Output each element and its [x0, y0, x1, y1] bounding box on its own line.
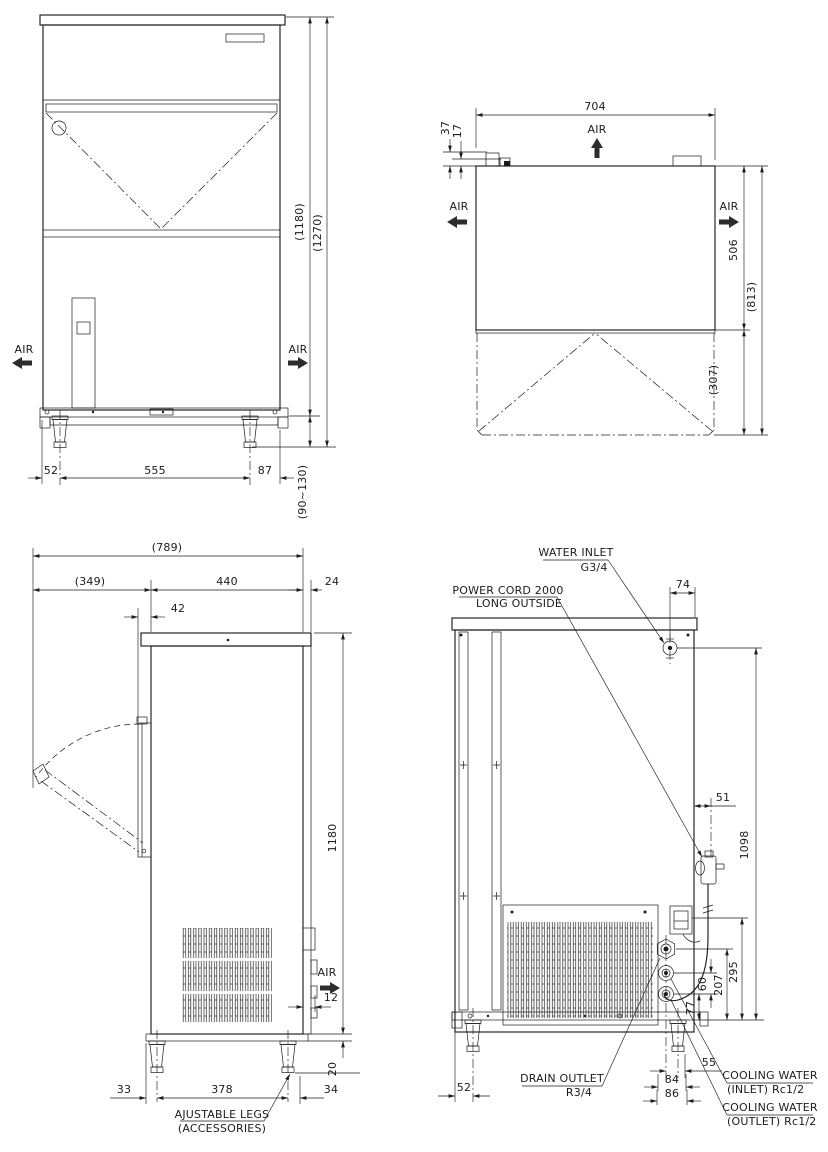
rear-power-plug: [701, 856, 716, 884]
side-door-swing-arc: [36, 724, 140, 777]
air-right-arrow-icon: [719, 216, 739, 228]
power-cord-label-line1: POWER CORD 2000: [452, 584, 563, 597]
top-air-flow: AIR AIR AIR: [447, 123, 739, 228]
air-right-arrow-icon: [288, 357, 308, 369]
side-air-flow: AIR: [317, 966, 340, 994]
front-dim-leg-range: (90~130): [296, 465, 309, 519]
front-door-handle: [72, 298, 95, 408]
front-cabinet-outline: [40, 15, 285, 410]
cooling-outlet-label-line2: (OUTLET) Rc1/2: [727, 1115, 817, 1128]
side-dim-door-thickness: 42: [171, 602, 185, 615]
top-door-swing-projection: [477, 333, 714, 435]
cooling-inlet-label-line2: (INLET) Rc1/2: [727, 1083, 804, 1096]
cooling-inlet-label-line1: COOLING WATER: [722, 1069, 818, 1082]
side-dim-height: 1180: [326, 824, 339, 853]
rear-dim-cord-height: 295: [727, 961, 740, 983]
front-bin-door-swing-line: [46, 113, 161, 229]
rear-callouts: WATER INLET G3/4 POWER CORD 2000 LONG OU…: [452, 546, 817, 1128]
adjustable-legs-label-line2: (ACCESSORIES): [178, 1122, 266, 1135]
top-view: AIR AIR AIR 704 37 17: [439, 100, 768, 435]
rear-cooling-inlet-fitting: [659, 966, 674, 981]
side-dim-body-depth: 440: [216, 575, 238, 588]
front-air-left-label: AIR: [14, 343, 33, 356]
drain-outlet-label-line2: R3/4: [566, 1086, 592, 1099]
front-dim-body-height: (1180): [293, 203, 306, 241]
rear-dim-cooling-gap: 60: [696, 977, 709, 991]
side-dim-depth-total: (789): [152, 541, 183, 554]
side-open-door-line: [45, 770, 143, 843]
technical-drawing-canvas: AIR AIR (1180) (1270) (90~130) 52 555 87: [0, 0, 828, 1152]
front-view: AIR AIR (1180) (1270) (90~130) 52 555 87: [12, 15, 336, 519]
side-door: [33, 717, 151, 857]
side-dim-rear-offset: 24: [325, 575, 339, 588]
top-air-right-label: AIR: [719, 200, 738, 213]
top-rear-tab: [673, 156, 701, 166]
side-dim-rear-leg: 34: [324, 1083, 338, 1096]
drawing-sheet: AIR AIR (1180) (1270) (90~130) 52 555 87: [0, 0, 828, 1152]
top-dim-depth-total: (813): [745, 282, 758, 313]
top-dim-width: 704: [584, 100, 606, 113]
rear-vent-grille: [503, 905, 658, 1025]
front-dimensions: (1180) (1270) (90~130) 52 555 87: [28, 17, 336, 519]
front-dim-total-height: (1270): [311, 214, 324, 252]
front-lock-detail: [52, 121, 66, 135]
front-dim-base-left: 52: [44, 464, 58, 477]
air-left-arrow-icon: [447, 216, 467, 228]
top-dimensions: 704 37 17 506 (813) (307): [439, 100, 768, 435]
air-up-arrow-icon: [591, 138, 603, 158]
top-cabinet-outline: [476, 153, 715, 333]
side-view: AIR (789) (349) 440 24 42 1180: [33, 541, 360, 1135]
air-left-arrow-icon: [12, 357, 32, 369]
rear-mounting-rails: [459, 632, 501, 1010]
front-bin-door-swing-line: [161, 113, 277, 229]
front-dim-leg-span: 555: [144, 464, 166, 477]
side-dim-base: 20: [326, 1062, 339, 1076]
water-inlet-label-line1: WATER INLET: [538, 546, 613, 559]
rear-view: 74 51 1098 295 207 60 77 52: [438, 546, 818, 1128]
rear-connector-box: [670, 906, 692, 934]
rear-dimensions: 74 51 1098 295 207 60 77 52: [438, 578, 764, 1105]
rear-fittings: [657, 935, 674, 1080]
side-rear-vent-tab: [303, 928, 315, 950]
side-vent-grille: [182, 928, 272, 1022]
drain-outlet-label-line1: DRAIN OUTLET: [520, 1072, 604, 1085]
adjustable-legs-label-line1: AJUSTABLE LEGS: [175, 1108, 270, 1121]
rear-dim-leg-offset: 52: [457, 1081, 471, 1094]
top-air-left-label: AIR: [449, 200, 468, 213]
side-dim-vent: 12: [324, 991, 338, 1004]
front-air-flow: AIR AIR: [12, 343, 308, 369]
front-nameplate: [226, 34, 264, 42]
rear-dim-outlet-height: 77: [684, 1001, 697, 1015]
front-air-right-label: AIR: [288, 343, 307, 356]
side-open-door-line: [41, 781, 139, 852]
rear-dim-fitting-span2: 86: [665, 1087, 679, 1100]
front-base-frame: [40, 408, 288, 428]
top-air-up-label: AIR: [587, 123, 606, 136]
top-rear-fitting-a: [486, 153, 499, 166]
rear-dim-cord-offset: 51: [716, 791, 730, 804]
rear-dim-inlet-offset: 74: [676, 578, 690, 591]
rear-dim-fitting-span: 84: [665, 1073, 679, 1086]
side-dim-door-swing: (349): [75, 575, 106, 588]
side-air-label: AIR: [317, 966, 336, 979]
cooling-outlet-label-line1: COOLING WATER: [722, 1101, 818, 1114]
water-inlet-label-line2: G3/4: [580, 561, 607, 574]
rear-dim-inlet-height: 1098: [738, 831, 751, 860]
rear-dim-drain-height: 207: [712, 974, 725, 996]
top-dim-depth: 506: [727, 239, 740, 261]
front-dim-base-right: 87: [258, 464, 272, 477]
top-dim-fitting-b: 17: [451, 124, 464, 138]
side-dim-leg-span: 378: [211, 1083, 233, 1096]
power-cord-label-line2: LONG OUTSIDE: [476, 597, 562, 610]
top-dim-door-swing: (307): [707, 365, 720, 396]
side-dim-front-leg: 33: [117, 1083, 131, 1096]
